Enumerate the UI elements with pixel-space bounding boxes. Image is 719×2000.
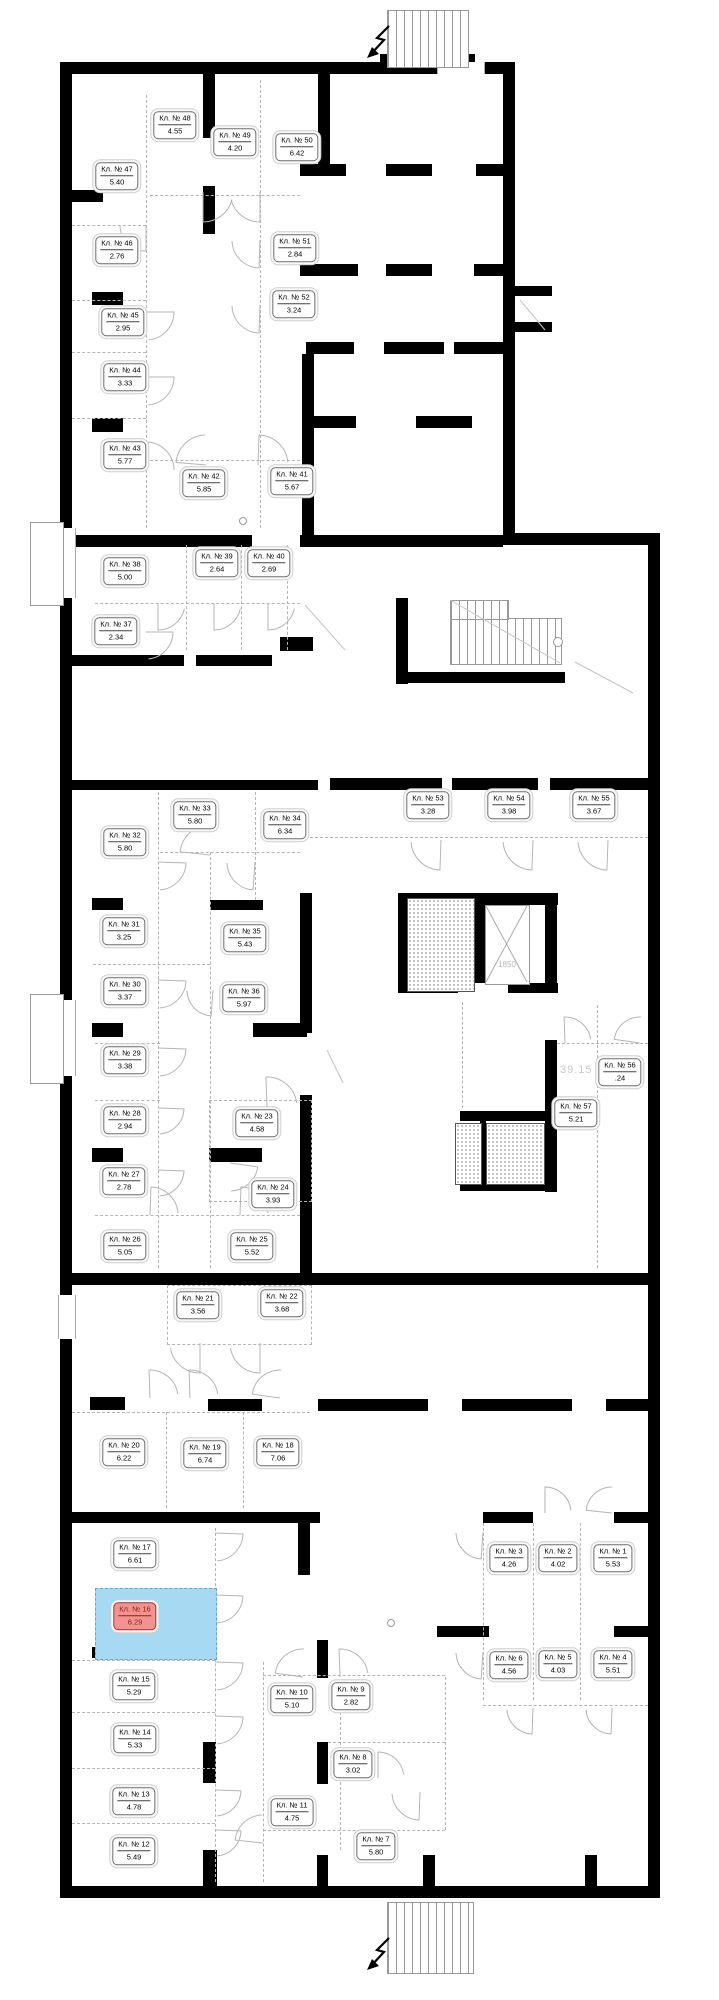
partition-line xyxy=(160,852,300,853)
wall-segment xyxy=(203,186,215,234)
room-area: 3.28 xyxy=(411,805,444,816)
room-area: 3.93 xyxy=(256,1194,289,1205)
room-label-2[interactable]: Кл. № 24.02 xyxy=(538,1544,577,1572)
wall-segment xyxy=(60,62,72,1898)
room-label-14[interactable]: Кл. № 145.33 xyxy=(113,1725,156,1753)
door-swing xyxy=(180,825,210,855)
room-number: Кл. № 28 xyxy=(108,1108,141,1120)
room-number: Кл. № 21 xyxy=(181,1293,214,1305)
partition-line xyxy=(210,852,211,1268)
room-area: 5.43 xyxy=(228,938,261,949)
wall-segment xyxy=(210,900,263,910)
wall-segment xyxy=(483,1512,533,1523)
room-label-17[interactable]: Кл. № 176.61 xyxy=(113,1540,156,1568)
wall-segment xyxy=(317,1742,328,1784)
wall-segment xyxy=(386,164,432,176)
partition-line xyxy=(186,545,187,650)
room-number: Кл. № 6 xyxy=(494,1653,523,1665)
room-number: Кл. № 46 xyxy=(100,238,133,250)
partition-line xyxy=(72,1660,215,1661)
column-post xyxy=(553,637,563,647)
room-label-4[interactable]: Кл. № 45.51 xyxy=(593,1650,632,1678)
door-swing xyxy=(392,1792,420,1820)
room-area: 3.37 xyxy=(108,991,141,1002)
room-area: 6.61 xyxy=(118,1554,151,1565)
partition-line xyxy=(255,792,256,900)
partition-line xyxy=(150,195,300,196)
room-label-26[interactable]: Кл. № 265.05 xyxy=(103,1232,146,1260)
room-number: Кл. № 11 xyxy=(276,1800,309,1812)
wall-segment xyxy=(386,264,432,276)
wall-segment xyxy=(585,1855,597,1886)
wall-segment xyxy=(196,655,272,666)
room-number: Кл. № 38 xyxy=(108,559,141,571)
room-number: Кл. № 24 xyxy=(256,1182,289,1194)
column-post xyxy=(387,1619,395,1627)
partition-line xyxy=(72,300,146,301)
room-number: Кл. № 41 xyxy=(275,469,308,481)
partition-line xyxy=(150,460,300,461)
wall-segment xyxy=(474,264,514,276)
wall-segment xyxy=(203,74,215,138)
room-number: Кл. № 43 xyxy=(108,443,141,455)
room-label-44[interactable]: Кл. № 443.33 xyxy=(103,363,146,391)
room-label-13[interactable]: Кл. № 134.78 xyxy=(112,1787,155,1815)
wall-segment xyxy=(92,1148,123,1162)
wall-segment xyxy=(317,1640,328,1678)
room-area: 2.76 xyxy=(100,250,133,261)
wall-segment xyxy=(300,164,346,176)
room-number: Кл. № 50 xyxy=(280,135,313,147)
room-number: Кл. № 32 xyxy=(108,830,141,842)
room-label-31[interactable]: Кл. № 313.25 xyxy=(102,917,145,945)
room-area: 5.53 xyxy=(598,1558,627,1569)
partition-line xyxy=(533,1523,534,1700)
room-label-20[interactable]: Кл. № 206.22 xyxy=(102,1438,145,1466)
room-label-25[interactable]: Кл. № 255.52 xyxy=(230,1232,273,1260)
door-swing xyxy=(215,1533,243,1561)
room-area: 2.82 xyxy=(336,1696,365,1707)
room-label-28[interactable]: Кл. № 282.94 xyxy=(103,1106,146,1134)
partition-line xyxy=(93,964,210,965)
thin-line xyxy=(327,1050,343,1083)
room-number: Кл. № 17 xyxy=(118,1542,151,1554)
shaft-hatched xyxy=(455,1123,482,1185)
room-label-57[interactable]: Кл. № 575.21 xyxy=(554,1099,597,1127)
room-label-5[interactable]: Кл. № 54.03 xyxy=(538,1650,577,1678)
door-swing xyxy=(150,1187,178,1215)
room-number: Кл. № 26 xyxy=(108,1234,141,1246)
room-label-50[interactable]: Кл. № 506.42 xyxy=(275,133,318,161)
entry-arrow-head xyxy=(367,47,379,58)
shaft-hatched xyxy=(486,1123,545,1185)
door-swing xyxy=(235,1815,263,1843)
room-label-34[interactable]: Кл. № 346.34 xyxy=(263,811,306,839)
room-number: Кл. № 16 xyxy=(118,1604,151,1616)
interior-staircase xyxy=(450,618,562,665)
room-number: Кл. № 1 xyxy=(598,1546,627,1558)
room-label-22[interactable]: Кл. № 223.68 xyxy=(260,1289,303,1317)
room-number: Кл. № 36 xyxy=(227,986,260,998)
room-area: 5.29 xyxy=(117,1686,150,1697)
door-swing xyxy=(170,1343,200,1373)
door-swing xyxy=(578,840,608,870)
room-label-56[interactable]: Кл. № 56.24 xyxy=(598,1058,641,1086)
room-area: 5.05 xyxy=(108,1246,141,1257)
room-area: 3.33 xyxy=(108,377,141,388)
wall-segment xyxy=(437,1626,489,1637)
room-number: Кл. № 53 xyxy=(411,793,444,805)
room-label-36[interactable]: Кл. № 365.97 xyxy=(222,984,265,1012)
room-area: 5.10 xyxy=(275,1699,308,1710)
room-label-42[interactable]: Кл. № 425.85 xyxy=(182,469,225,497)
wall-segment xyxy=(92,898,123,910)
thin-line xyxy=(575,662,633,693)
partition-line xyxy=(72,352,146,353)
wall-segment xyxy=(298,1523,310,1575)
room-area: 2.64 xyxy=(200,563,233,574)
room-number: Кл. № 10 xyxy=(275,1687,308,1699)
room-area: 5.80 xyxy=(108,842,141,853)
room-area: 4.26 xyxy=(494,1558,523,1569)
room-number: Кл. № 34 xyxy=(268,813,301,825)
room-number: Кл. № 13 xyxy=(117,1789,150,1801)
room-area: 5.77 xyxy=(108,455,141,466)
door-swing xyxy=(275,1649,304,1677)
door-swing xyxy=(252,1370,281,1398)
partition-line xyxy=(95,1043,160,1044)
partition-line xyxy=(597,1005,598,1268)
partition-line xyxy=(95,1100,160,1101)
partition-line xyxy=(263,1662,264,1882)
window-opening xyxy=(58,1295,76,1339)
room-area: 5.80 xyxy=(361,1846,390,1857)
door-swing xyxy=(189,1370,218,1398)
room-area: 7.06 xyxy=(261,1452,294,1463)
room-label-43[interactable]: Кл. № 435.77 xyxy=(103,441,146,469)
exterior-bay-outline xyxy=(30,994,64,1084)
room-number: Кл. № 3 xyxy=(494,1546,523,1558)
wall-segment xyxy=(330,778,442,790)
room-label-27[interactable]: Кл. № 272.78 xyxy=(102,1167,145,1195)
wall-segment xyxy=(92,292,123,305)
room-label-52[interactable]: Кл. № 523.24 xyxy=(272,290,315,318)
wall-segment xyxy=(306,342,354,354)
partition-line xyxy=(72,225,146,226)
door-swing xyxy=(158,603,184,630)
room-area: 4.03 xyxy=(543,1664,572,1675)
room-label-30[interactable]: Кл. № 303.37 xyxy=(103,977,146,1005)
wall-segment xyxy=(452,778,538,790)
room-area: 2.95 xyxy=(106,322,139,333)
wall-segment xyxy=(60,535,252,547)
room-label-51[interactable]: Кл. № 512.84 xyxy=(273,234,316,262)
entry-arrow-head xyxy=(367,1959,379,1970)
room-number: Кл. № 30 xyxy=(108,979,141,991)
door-swing xyxy=(158,1170,184,1196)
room-number: Кл. № 40 xyxy=(252,551,285,563)
room-number: Кл. № 51 xyxy=(278,236,311,248)
door-swing xyxy=(564,1017,591,1043)
room-number: Кл. № 39 xyxy=(200,551,233,563)
elevator-shaft xyxy=(485,905,530,985)
room-number: Кл. № 9 xyxy=(336,1684,365,1696)
room-area: 3.24 xyxy=(277,304,310,315)
room-area: 6.29 xyxy=(118,1616,151,1627)
room-area: 3.98 xyxy=(492,805,525,816)
wall-segment xyxy=(515,286,552,296)
wall-segment xyxy=(92,418,123,432)
wall-segment xyxy=(318,74,330,166)
wall-segment xyxy=(60,1273,660,1285)
room-area: 5.85 xyxy=(187,483,220,494)
door-swing xyxy=(158,1108,184,1134)
room-label-38[interactable]: Кл. № 385.00 xyxy=(103,557,146,585)
floor-plan: 39.15 1850 Кл. № 15.53Кл. № 24.02Кл. № 3… xyxy=(0,0,719,2000)
room-number: Кл. № 52 xyxy=(277,292,310,304)
room-number: Кл. № 31 xyxy=(107,919,140,931)
room-number: Кл. № 20 xyxy=(107,1440,140,1452)
room-label-41[interactable]: Кл. № 415.67 xyxy=(270,467,313,495)
wall-segment xyxy=(460,1111,545,1121)
room-area: 4.20 xyxy=(218,142,251,153)
room-number: Кл. № 35 xyxy=(228,926,261,938)
partition-line xyxy=(72,1712,215,1713)
room-label-48[interactable]: Кл. № 484.55 xyxy=(153,111,196,139)
partition-line xyxy=(580,1523,581,1700)
room-area: 6.42 xyxy=(280,147,313,158)
length-dimension-text: 39.15 xyxy=(560,1064,593,1076)
wall-segment xyxy=(550,778,648,790)
partition-line xyxy=(72,1768,215,1769)
room-area: 2.78 xyxy=(107,1181,140,1192)
wall-segment xyxy=(280,637,313,651)
door-swing xyxy=(378,1752,404,1778)
room-area: 5.49 xyxy=(117,1851,150,1862)
room-label-3[interactable]: Кл. № 34.26 xyxy=(489,1544,528,1572)
room-area: 3.25 xyxy=(107,931,140,942)
wall-segment xyxy=(300,535,503,547)
room-number: Кл. № 23 xyxy=(240,1111,273,1123)
room-area: 6.22 xyxy=(107,1452,140,1463)
wall-segment xyxy=(314,416,356,428)
room-label-53[interactable]: Кл. № 533.28 xyxy=(406,791,449,819)
room-label-45[interactable]: Кл. № 452.95 xyxy=(101,308,144,336)
room-label-37[interactable]: Кл. № 372.34 xyxy=(94,617,137,645)
room-area: 5.40 xyxy=(100,176,133,187)
room-number: Кл. № 14 xyxy=(118,1727,151,1739)
partition-line xyxy=(300,837,648,838)
partition-line xyxy=(215,1528,216,1882)
room-label-1[interactable]: Кл. № 15.53 xyxy=(593,1544,632,1572)
room-label-29[interactable]: Кл. № 293.38 xyxy=(103,1046,146,1074)
wall-segment xyxy=(503,62,515,545)
room-number: Кл. № 12 xyxy=(117,1839,150,1851)
room-label-55[interactable]: Кл. № 553.67 xyxy=(572,791,615,819)
room-number: Кл. № 48 xyxy=(158,113,191,125)
door-swing xyxy=(456,1652,483,1679)
wall-segment xyxy=(476,164,514,176)
wall-segment xyxy=(300,893,312,1033)
wall-segment xyxy=(60,190,103,202)
door-swing xyxy=(215,1830,241,1856)
room-area: 4.78 xyxy=(117,1801,150,1812)
room-area: 6.34 xyxy=(268,825,301,836)
room-label-11[interactable]: Кл. № 114.75 xyxy=(271,1798,314,1826)
room-label-8[interactable]: Кл. № 83.02 xyxy=(333,1750,372,1778)
wall-segment xyxy=(72,780,318,790)
column-post xyxy=(239,517,247,525)
room-number: Кл. № 33 xyxy=(178,803,211,815)
wall-segment xyxy=(503,533,660,545)
door-swing xyxy=(215,1595,243,1623)
room-area: 5.80 xyxy=(178,815,211,826)
room-area: 4.75 xyxy=(276,1812,309,1823)
room-area: 5.33 xyxy=(118,1739,151,1750)
room-area: 5.21 xyxy=(559,1113,592,1124)
wall-segment xyxy=(60,1886,660,1898)
wall-segment xyxy=(648,545,660,1898)
door-swing xyxy=(503,840,533,870)
room-area: 3.38 xyxy=(108,1060,141,1071)
room-label-6[interactable]: Кл. № 64.56 xyxy=(489,1651,528,1679)
wall-segment xyxy=(423,1855,435,1886)
partition-line xyxy=(95,603,300,604)
room-area: .24 xyxy=(603,1072,636,1083)
door-swing xyxy=(339,1649,368,1677)
room-label-47[interactable]: Кл. № 475.40 xyxy=(95,162,138,190)
door-swing xyxy=(614,1017,641,1043)
door-swing xyxy=(158,1048,186,1076)
partition-line xyxy=(72,1412,310,1413)
wall-segment xyxy=(72,655,184,666)
room-number: Кл. № 18 xyxy=(261,1440,294,1452)
door-swing xyxy=(456,1532,483,1559)
room-label-18[interactable]: Кл. № 187.06 xyxy=(256,1438,299,1466)
room-area: 4.56 xyxy=(494,1665,523,1676)
door-swing xyxy=(586,1708,612,1734)
room-number: Кл. № 49 xyxy=(218,130,251,142)
room-area: 5.00 xyxy=(108,571,141,582)
room-label-16[interactable]: Кл. № 166.29 xyxy=(113,1602,156,1630)
partition-line xyxy=(483,1523,484,1700)
partition-line xyxy=(95,1215,300,1216)
interior-staircase xyxy=(450,600,509,620)
room-label-33[interactable]: Кл. № 335.80 xyxy=(173,801,216,829)
room-number: Кл. № 42 xyxy=(187,471,220,483)
door-swing xyxy=(158,980,186,1008)
wall-segment xyxy=(400,672,565,683)
partition-line xyxy=(243,1412,244,1508)
room-area: 5.51 xyxy=(598,1664,627,1675)
wall-segment xyxy=(253,1023,307,1037)
wall-segment xyxy=(614,1626,648,1637)
room-area: 2.94 xyxy=(108,1120,141,1131)
door-swing xyxy=(146,377,174,405)
room-number: Кл. № 44 xyxy=(108,365,141,377)
room-label-46[interactable]: Кл. № 462.76 xyxy=(95,236,138,264)
partition-line xyxy=(263,1830,445,1831)
room-label-12[interactable]: Кл. № 125.49 xyxy=(112,1837,155,1865)
room-number: Кл. № 37 xyxy=(99,619,132,631)
room-number: Кл. № 2 xyxy=(543,1546,572,1558)
room-label-35[interactable]: Кл. № 355.43 xyxy=(223,924,266,952)
wall-segment xyxy=(545,893,557,993)
room-label-39[interactable]: Кл. № 392.64 xyxy=(195,549,238,577)
room-area: 5.97 xyxy=(227,998,260,1009)
wall-segment xyxy=(317,1855,328,1886)
room-area: 6.74 xyxy=(188,1454,221,1465)
room-area: 3.56 xyxy=(181,1305,214,1316)
wall-segment xyxy=(384,342,444,354)
partition-line xyxy=(72,418,146,419)
partition-line xyxy=(462,1002,463,1108)
exterior-staircase xyxy=(387,10,469,68)
room-area: 4.55 xyxy=(158,125,191,136)
room-area: 3.67 xyxy=(577,805,610,816)
room-number: Кл. № 5 xyxy=(543,1652,572,1664)
room-area: 3.68 xyxy=(265,1303,298,1314)
room-label-21[interactable]: Кл. № 213.56 xyxy=(176,1291,219,1319)
wall-segment xyxy=(208,1399,262,1411)
room-number: Кл. № 19 xyxy=(188,1442,221,1454)
wall-segment xyxy=(515,322,552,332)
door-swing xyxy=(215,1790,241,1816)
partition-line xyxy=(166,1412,167,1508)
door-swing xyxy=(215,1662,243,1690)
door-swing xyxy=(411,840,441,870)
wall-segment xyxy=(614,1512,648,1523)
shaft-hatched xyxy=(407,898,475,992)
wall-segment xyxy=(92,1023,123,1037)
room-number: Кл. № 55 xyxy=(577,793,610,805)
room-number: Кл. № 29 xyxy=(108,1048,141,1060)
door-swing xyxy=(149,1370,178,1398)
door-swing xyxy=(231,192,260,222)
exterior-bay-outline xyxy=(30,522,64,606)
room-label-7[interactable]: Кл. № 75.80 xyxy=(356,1832,395,1860)
door-swing xyxy=(232,305,260,333)
wall-segment xyxy=(302,354,314,535)
partition-line xyxy=(158,792,159,1268)
wall-segment xyxy=(318,1399,428,1411)
room-number: Кл. № 47 xyxy=(100,164,133,176)
room-number: Кл. № 8 xyxy=(338,1752,367,1764)
room-label-49[interactable]: Кл. № 494.20 xyxy=(213,128,256,156)
room-number: Кл. № 45 xyxy=(106,310,139,322)
room-label-10[interactable]: Кл. № 105.10 xyxy=(270,1685,313,1713)
wall-segment xyxy=(462,1399,572,1411)
room-label-23[interactable]: Кл. № 234.58 xyxy=(235,1109,278,1137)
room-number: Кл. № 22 xyxy=(265,1291,298,1303)
room-label-54[interactable]: Кл. № 543.98 xyxy=(487,791,530,819)
wall-segment xyxy=(416,416,472,428)
door-swing xyxy=(232,240,260,268)
room-label-19[interactable]: Кл. № 196.74 xyxy=(183,1440,226,1468)
room-number: Кл. № 27 xyxy=(107,1169,140,1181)
room-label-24[interactable]: Кл. № 243.93 xyxy=(251,1180,294,1208)
room-number: Кл. № 57 xyxy=(559,1101,592,1113)
room-label-15[interactable]: Кл. № 155.29 xyxy=(112,1672,155,1700)
partition-line xyxy=(241,545,242,650)
room-area: 3.02 xyxy=(338,1764,367,1775)
room-number: Кл. № 15 xyxy=(117,1674,150,1686)
room-label-32[interactable]: Кл. № 325.80 xyxy=(103,828,146,856)
door-swing xyxy=(227,862,255,890)
door-swing xyxy=(146,442,174,470)
room-label-9[interactable]: Кл. № 92.82 xyxy=(331,1682,370,1710)
room-label-40[interactable]: Кл. № 402.69 xyxy=(247,549,290,577)
